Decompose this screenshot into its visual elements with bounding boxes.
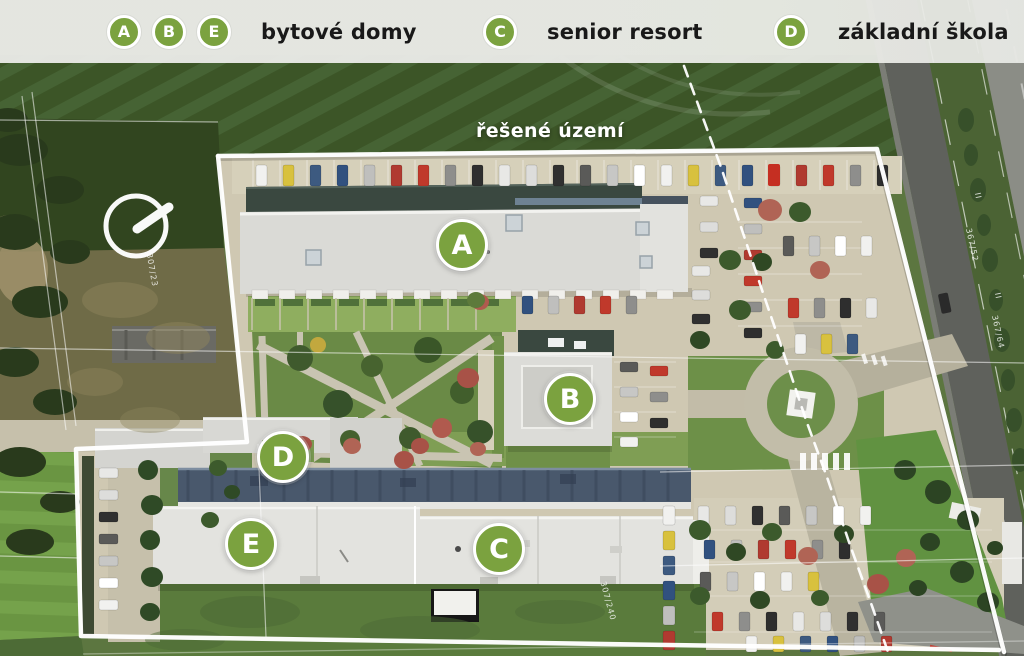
marker-letter: E: [242, 531, 260, 558]
marker-letter: D: [272, 444, 294, 471]
legend-group-school: D základní škola: [774, 0, 1009, 63]
map-overlay: řešené území ABCDE 307/23II367/52II367/6…: [0, 0, 1024, 656]
legend-badge-a: A: [107, 15, 141, 49]
legend-group-senior-resort: C senior resort: [483, 0, 703, 63]
parcel-label: 307/23: [145, 252, 160, 287]
marker-letter: C: [489, 536, 509, 563]
legend-label-senior-resort: senior resort: [547, 20, 703, 44]
marker-letter: A: [452, 232, 473, 259]
legend-badge-b: B: [152, 15, 186, 49]
legend-label-residential: bytové domy: [261, 20, 417, 44]
legend-badge-c: C: [483, 15, 517, 49]
legend-label-school: základní škola: [838, 20, 1009, 44]
map-marker-c[interactable]: C: [473, 523, 525, 575]
legend-group-residential: ABE bytové domy: [107, 0, 417, 63]
area-label: řešené území: [438, 120, 662, 142]
parcel-label: 307/240: [598, 580, 617, 621]
legend-badge-e: E: [197, 15, 231, 49]
parcel-label: 367/52: [964, 227, 980, 262]
parcel-label: II: [973, 192, 983, 200]
map-marker-b[interactable]: B: [544, 373, 596, 425]
site-plan-image: řešené území ABCDE 307/23II367/52II367/6…: [0, 0, 1024, 656]
marker-letter: B: [560, 386, 581, 413]
map-marker-a[interactable]: A: [436, 219, 488, 271]
legend-bar: ABE bytové domy C senior resort D základ…: [0, 0, 1024, 63]
map-marker-e[interactable]: E: [225, 518, 277, 570]
parcel-label: II: [993, 292, 1003, 300]
parcel-label: 367/64: [990, 314, 1006, 349]
map-marker-d[interactable]: D: [257, 431, 309, 483]
legend-badge-d: D: [774, 15, 808, 49]
